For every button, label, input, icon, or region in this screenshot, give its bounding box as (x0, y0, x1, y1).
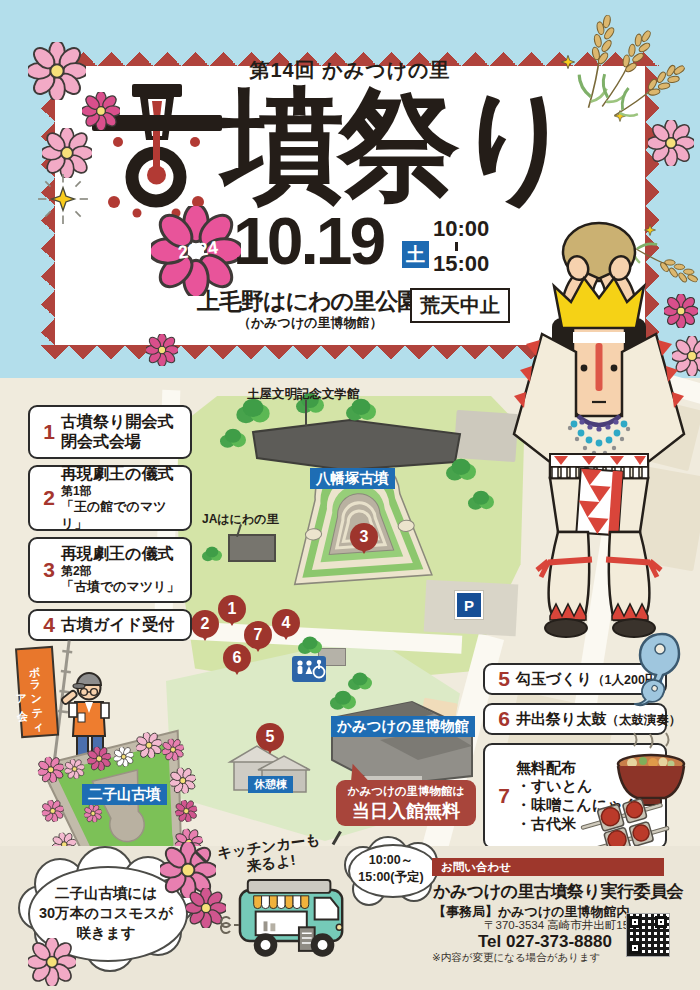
qr-eye (629, 942, 641, 954)
kitchen-car-illustration (236, 868, 354, 962)
label-pointer-line (305, 400, 307, 426)
cosmos-bubble-line: 30万本のコスモスが (39, 903, 173, 923)
time-divider (455, 242, 458, 251)
legend-text: 第1部 (61, 484, 183, 499)
restroom-icon (292, 656, 326, 682)
legend-text: 古墳祭り開会式 (61, 412, 173, 432)
contact-disclaimer: ※内容が変更になる場合があります (432, 951, 601, 965)
pin-number: 1 (228, 600, 237, 618)
yawatazuka-kofun-label: 八幡塚古墳 (310, 468, 395, 489)
tree-icon (220, 428, 246, 450)
qr-eye (655, 916, 667, 928)
legend-number: 1 (37, 420, 61, 444)
legend-text: 再現劇王の儀式 (61, 544, 180, 564)
cosmos-flower-icon (28, 938, 76, 986)
map-pin-3: 3 (350, 523, 378, 551)
futagoyama-kofun-label: 二子山古墳 (82, 784, 167, 805)
tree-icon (446, 458, 476, 483)
free-admission-line2: 当日入館無料 (336, 799, 476, 823)
exhaust-puff-icon (216, 916, 240, 936)
pin-number: 6 (233, 649, 242, 667)
contact-organization: かみつけの里古墳祭り実行委員会 (433, 880, 683, 903)
cosmos-flower-icon (28, 42, 86, 100)
legend-item-3: 3 再現劇王の儀式第2部「古墳でのマツリ」 (28, 537, 192, 603)
pin-number: 5 (266, 728, 275, 746)
weather-cancellation-badge: 荒天中止 (410, 288, 510, 323)
kitchen-car-time-text: 10:00～ 15:00(予定) (348, 845, 434, 893)
map-pin-7: 7 (244, 621, 272, 649)
venue-note: （かみつけの里博物館） (238, 314, 383, 332)
time-start: 10:00 (433, 218, 489, 240)
tree-icon (468, 490, 494, 512)
legend-text: 「古墳でのマツリ」 (61, 579, 180, 595)
map-pin-2: 2 (191, 610, 219, 638)
cosmos-bubble-line: 咲きます (76, 923, 135, 943)
legend-number: 2 (37, 486, 61, 510)
legend-number: 7 (492, 784, 516, 808)
legend-item-2: 2 再現劇王の儀式第1部「王の館でのマツリ」 (28, 465, 192, 531)
cosmos-bubble-line: 二子山古墳には (55, 883, 157, 903)
literature-museum-label: 土屋文明記念文学館 (247, 386, 360, 403)
rest-house-label: 休憩棟 (248, 776, 293, 793)
kitchen-car-time-line: 10:00～ (369, 852, 413, 869)
pin-number: 3 (360, 528, 369, 546)
event-times: 10:00 15:00 (433, 218, 489, 275)
pin-number: 4 (282, 614, 291, 632)
contact-header-bar: お問い合わせ (432, 858, 664, 876)
legend-number: 3 (37, 558, 61, 582)
festival-poster: 土屋文明記念文学館 八幡塚古墳 JAはにわの里 P かみつけの里博物館 休憩棟 … (0, 0, 700, 990)
qr-code (626, 913, 670, 957)
cosmos-flower-icon (648, 120, 694, 166)
weekday-badge: 土 (402, 241, 429, 268)
map-pin-6: 6 (223, 644, 251, 672)
tree-icon (202, 546, 222, 563)
legend-text: 再現劇王の儀式 (61, 464, 183, 484)
legend-text: 井出祭り太鼓 (516, 710, 606, 727)
ja-building (228, 534, 276, 562)
venue-name: 上毛野はにわの里公園 (197, 286, 419, 317)
literature-museum-building (245, 418, 465, 473)
free-admission-line1: かみつけの里博物館は (336, 784, 476, 799)
cosmos-flower-icon (42, 128, 92, 178)
legend-number: 5 (492, 667, 516, 691)
parking-icon: P (455, 591, 483, 619)
pin-number: 2 (201, 615, 210, 633)
legend-text: 第2部 (61, 564, 180, 579)
free-admission-callout: かみつけの里博物館は 当日入館無料 (336, 780, 476, 826)
legend-text: 閉会式会場 (61, 432, 173, 452)
legend-number: 6 (492, 707, 516, 731)
kitchen-car-time-line: 15:00(予定) (358, 869, 423, 886)
legend-text: 勾玉づくり (516, 670, 592, 687)
main-title: 墳祭り (222, 84, 573, 206)
map-pin-5: 5 (256, 723, 284, 751)
cosmos-flower-icon (82, 92, 120, 130)
legend-text: 古墳ガイド受付 (61, 615, 174, 635)
cosmos-flower-icon (146, 334, 178, 366)
legend-text: 「王の館でのマツリ」 (61, 499, 183, 532)
map-pin-1: 1 (218, 595, 246, 623)
museum-label: かみつけの里博物館 (331, 716, 475, 737)
legend-text: （太鼓演奏） (606, 713, 681, 727)
time-end: 15:00 (433, 253, 489, 275)
haniwa-king-illustration (496, 220, 700, 644)
contact-telephone: Tel 027-373-8880 (478, 932, 612, 952)
legend-item-1: 1 古墳祭り開会式閉会式会場 (28, 405, 192, 459)
tree-icon (298, 636, 322, 656)
map-pin-4: 4 (272, 609, 300, 637)
event-date: 10.19 (233, 208, 383, 274)
tree-icon (348, 672, 372, 692)
pin-number: 7 (254, 626, 263, 644)
tree-icon (330, 690, 356, 712)
sparkle-icon (36, 172, 90, 226)
skewer-food-icon (578, 794, 672, 854)
contact-address: 〒370-3534 高崎市井出町1514 (484, 918, 642, 933)
qr-eye (629, 916, 641, 928)
legend-number: 4 (37, 613, 61, 637)
